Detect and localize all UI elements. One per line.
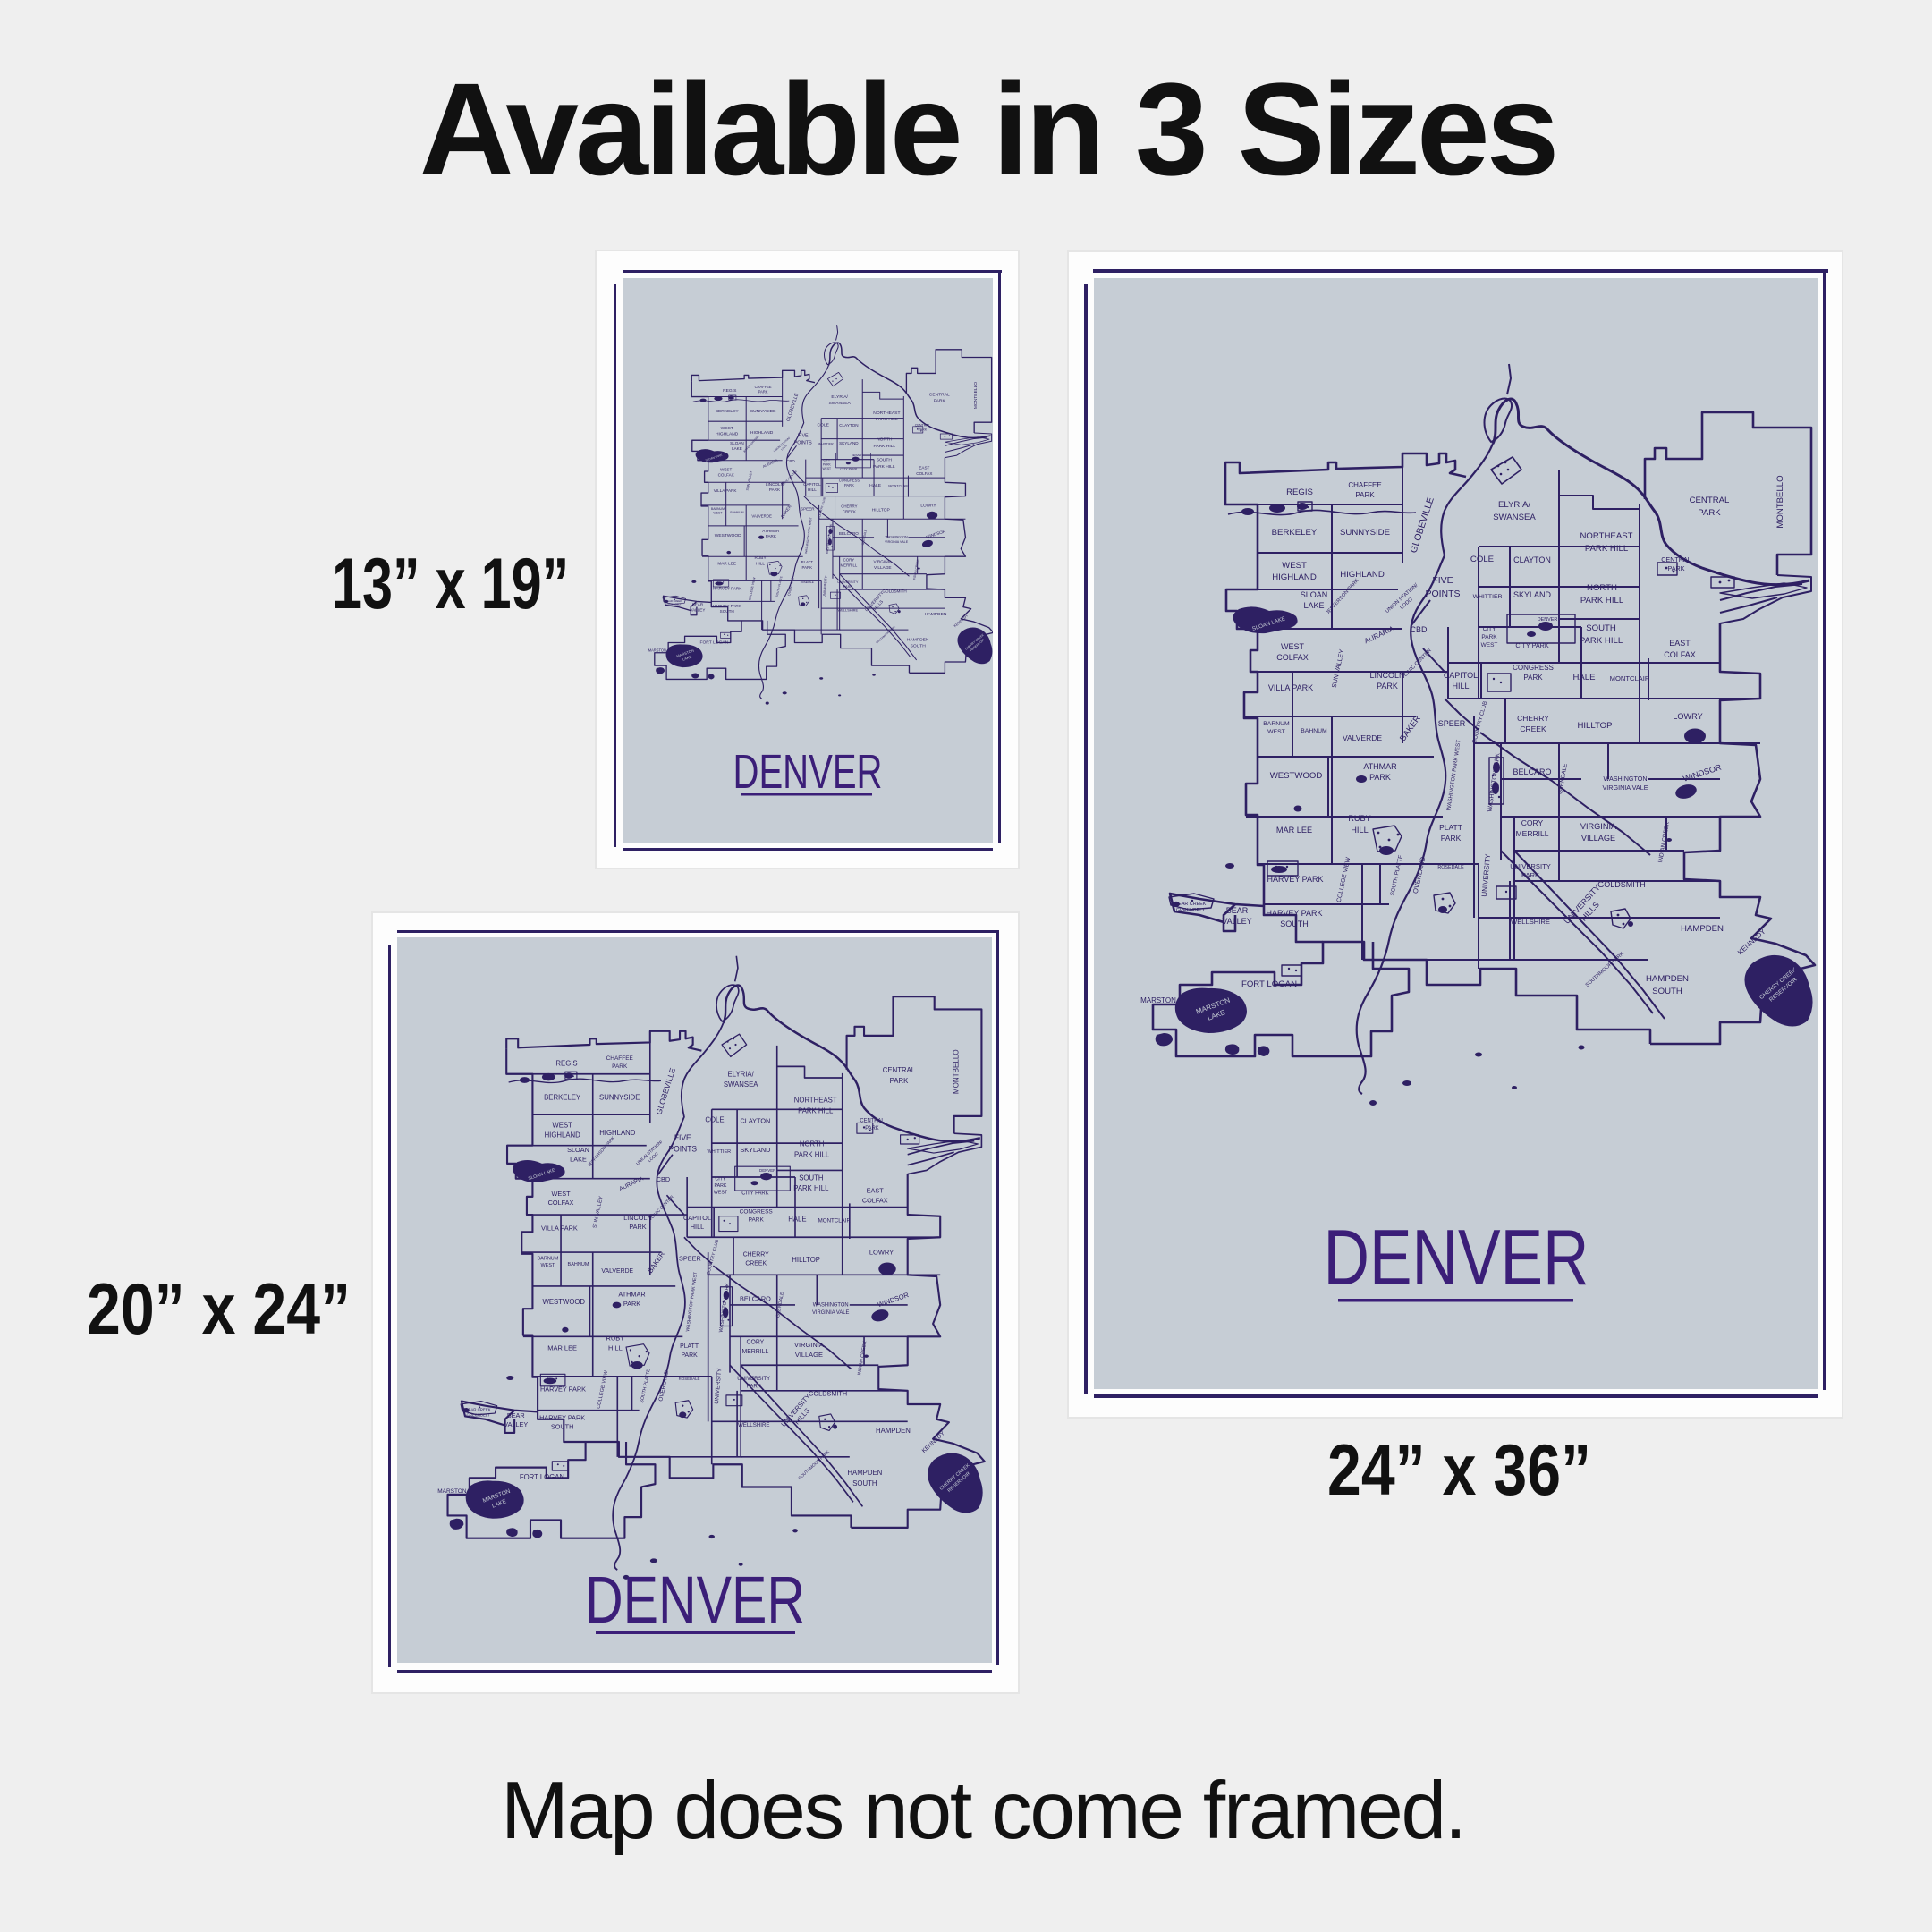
svg-text:DENVER: DENVER — [585, 1563, 805, 1637]
svg-text:DENVER: DENVER — [1324, 1213, 1589, 1301]
svg-text:DENVER: DENVER — [733, 745, 883, 799]
